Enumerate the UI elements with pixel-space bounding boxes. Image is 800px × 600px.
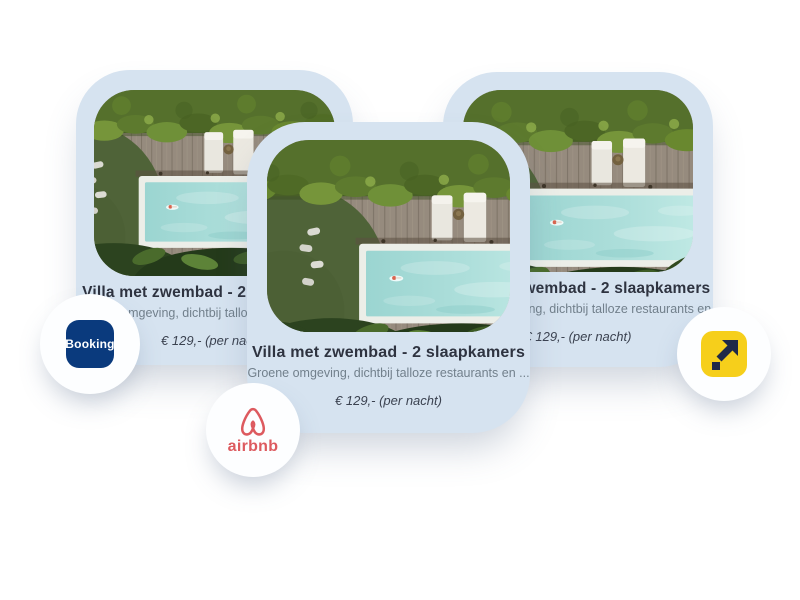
diagonal-arrow-logo-icon — [701, 331, 747, 377]
booking-platform-badge[interactable]: Booking — [40, 294, 140, 394]
airbnb-platform-badge[interactable]: airbnb — [206, 383, 300, 477]
diagonal-arrow-icon — [701, 331, 747, 377]
listing-title: Villa met zwembad - 2 slaapkamers — [247, 344, 530, 362]
listing-description: Groene omgeving, dichtbij talloze restau… — [247, 366, 530, 380]
arrow-platform-badge[interactable] — [677, 307, 771, 401]
booking-logo-label: Booking — [65, 337, 114, 351]
listing-card-middle[interactable]: Villa met zwembad - 2 slaapkamers Groene… — [247, 122, 530, 433]
villa-photo — [267, 140, 510, 332]
villa-pool-aerial-image — [267, 140, 510, 332]
airbnb-belo-icon — [235, 405, 271, 437]
booking-logo-icon: Booking — [66, 320, 114, 368]
airbnb-logo-label: airbnb — [228, 438, 279, 456]
